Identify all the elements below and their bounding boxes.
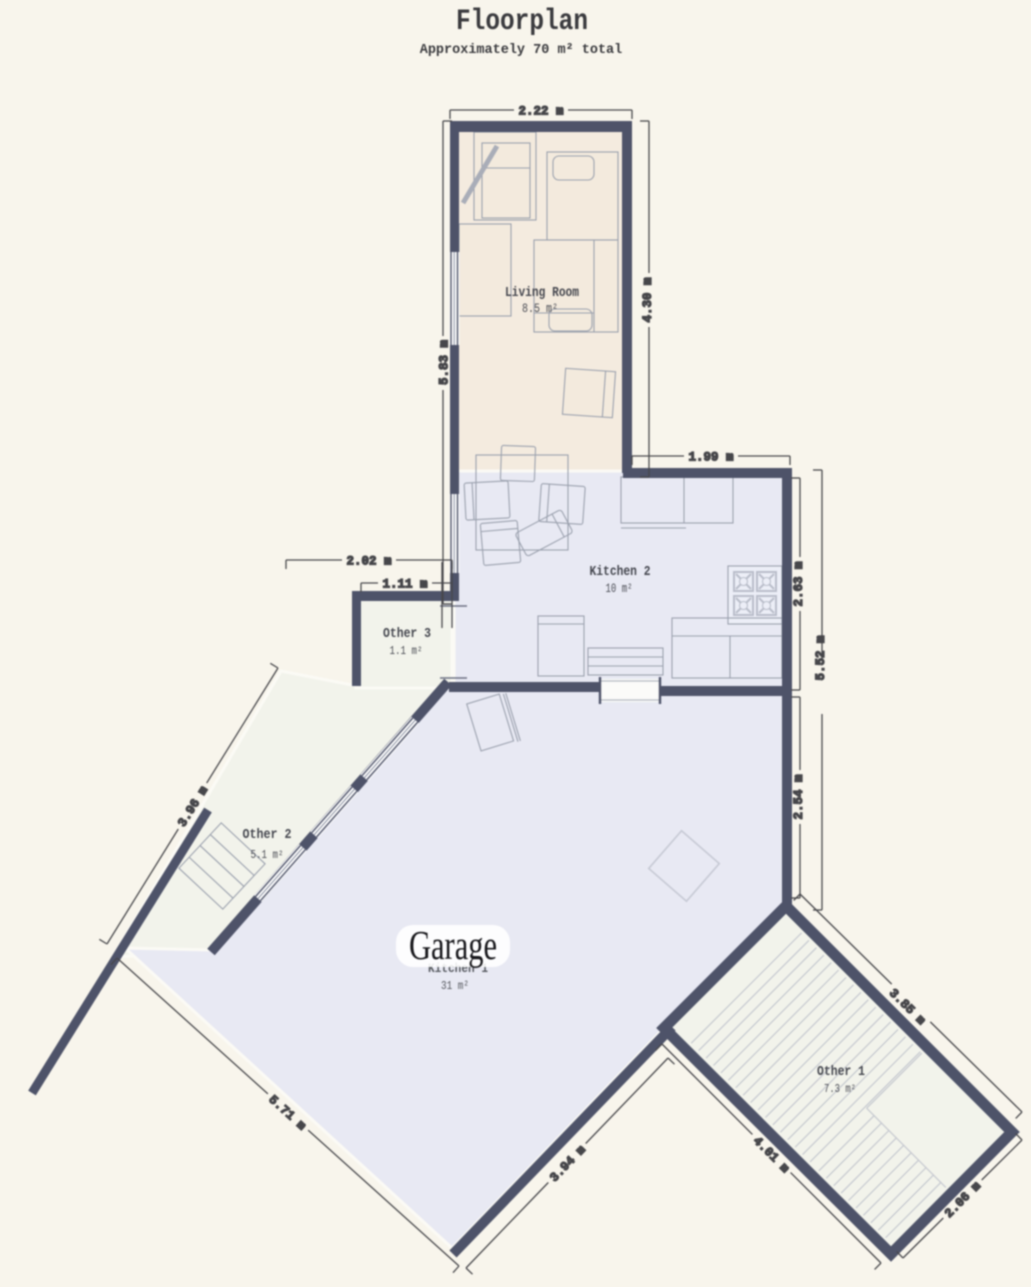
svg-text:5.1 m²: 5.1 m² [251,849,284,862]
svg-text:7.3 m²: 7.3 m² [824,1083,856,1096]
svg-text:Other 2: Other 2 [243,827,292,843]
svg-text:Floorplan: Floorplan [456,5,588,39]
svg-text:1.11 m: 1.11 m [382,578,428,592]
svg-text:1.99 m: 1.99 m [688,451,734,465]
svg-text:Approximately 70 m² total: Approximately 70 m² total [420,43,623,58]
svg-text:Kitchen 2: Kitchen 2 [590,564,651,580]
svg-text:8.5 m²: 8.5 m² [522,302,558,316]
svg-text:31 m²: 31 m² [441,979,469,993]
svg-text:2.54 m: 2.54 m [792,774,806,820]
svg-text:5.52 m: 5.52 m [814,635,828,681]
svg-text:5.83 m: 5.83 m [438,340,452,386]
svg-text:Garage: Garage [409,922,497,968]
svg-text:Living Room: Living Room [505,285,579,301]
svg-text:2.22 m: 2.22 m [518,105,564,119]
svg-text:2.02 m: 2.02 m [346,555,392,569]
svg-text:4.30 m: 4.30 m [641,277,655,323]
svg-text:2.63 m: 2.63 m [792,561,806,607]
svg-text:10 m²: 10 m² [606,582,633,596]
svg-text:Other 1: Other 1 [817,1064,865,1080]
svg-text:Other 3: Other 3 [383,626,431,642]
svg-text:1.1 m²: 1.1 m² [390,645,423,658]
